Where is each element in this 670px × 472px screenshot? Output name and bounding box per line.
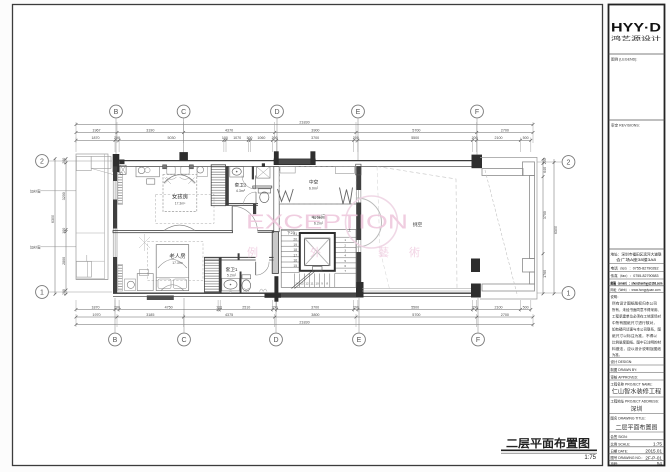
svg-text:17.3m²: 17.3m² (172, 261, 183, 265)
svg-text:16: 16 (293, 259, 297, 263)
svg-text:6: 6 (344, 264, 346, 268)
svg-text:1870: 1870 (92, 136, 100, 140)
svg-text:3700: 3700 (311, 306, 319, 310)
svg-text:审核 APPROVED:: 审核 APPROVED: (611, 375, 639, 380)
svg-text:图号 DRAWING NO.:: 图号 DRAWING NO.: (611, 455, 643, 460)
svg-text:1: 1 (344, 238, 346, 242)
svg-text:15: 15 (293, 264, 297, 268)
svg-text:1: 1 (40, 290, 44, 297)
svg-text:2510: 2510 (242, 306, 250, 310)
svg-text:日期 DATE:: 日期 DATE: (611, 448, 629, 453)
svg-text:2: 2 (40, 159, 44, 166)
svg-text:5700: 5700 (412, 128, 420, 132)
svg-text:4750: 4750 (165, 306, 173, 310)
svg-text:500: 500 (523, 306, 529, 310)
svg-text:外: 外 (310, 246, 321, 259)
svg-text:图例 (LEGEND):: 图例 (LEGEND): (611, 57, 637, 62)
svg-text:5: 5 (344, 259, 346, 263)
svg-text:F: F (475, 109, 479, 116)
svg-text:12: 12 (305, 282, 309, 286)
svg-text:1060: 1060 (257, 136, 265, 140)
svg-text:4370: 4370 (225, 128, 233, 132)
svg-text:21830: 21830 (299, 120, 309, 124)
svg-text:54: 54 (657, 461, 663, 466)
svg-text:4: 4 (344, 254, 346, 258)
svg-text:2015.01: 2015.01 (645, 449, 662, 454)
svg-text:工程承建单位必须在工地现场对: 工程承建单位必须在工地现场对 (612, 314, 662, 319)
svg-text:17.3m²: 17.3m² (175, 201, 186, 205)
svg-text:6.0m²: 6.0m² (309, 186, 319, 190)
svg-text:F: F (476, 337, 480, 344)
svg-text:1760: 1760 (543, 270, 547, 278)
svg-text:如有疑问请速与本公司联系，图: 如有疑问请速与本公司联系，图 (612, 327, 662, 332)
svg-text:100: 100 (222, 136, 228, 140)
svg-text:3800: 3800 (311, 313, 319, 317)
svg-text:E: E (357, 337, 362, 344)
svg-text:D: D (274, 109, 279, 116)
svg-text:3200: 3200 (62, 192, 66, 200)
svg-text:纸尺寸以标注为准，不得以: 纸尺寸以标注为准，不得以 (612, 333, 658, 338)
svg-text:B: B (114, 109, 119, 116)
svg-text:挑空: 挑空 (413, 221, 423, 228)
svg-text:加纱窗: 加纱窗 (30, 189, 41, 194)
svg-text:1: 1 (567, 291, 571, 298)
svg-text:合广场A座38楼3A8: 合广场A座38楼3A8 (616, 257, 656, 262)
svg-text:为准。: 为准。 (612, 352, 622, 357)
svg-text:5.2m²: 5.2m² (227, 273, 237, 277)
svg-text:料做法，应以设计说明及图纸: 料做法，应以设计说明及图纸 (612, 346, 662, 351)
svg-text:3: 3 (344, 249, 346, 253)
svg-text:200: 200 (62, 158, 66, 164)
svg-text:3185: 3185 (146, 313, 154, 317)
svg-text:2: 2 (567, 160, 571, 167)
svg-text:3700: 3700 (311, 136, 319, 140)
svg-text:B: B (113, 337, 118, 344)
svg-text:3900: 3900 (311, 128, 319, 132)
svg-text:18: 18 (293, 248, 297, 252)
svg-text:5030: 5030 (168, 136, 176, 140)
svg-text:电话（tel）：0755-82790282: 电话（tel）：0755-82790282 (611, 266, 659, 271)
svg-text:1970: 1970 (92, 313, 100, 317)
svg-text:C: C (181, 337, 186, 344)
svg-text:二层平面布置图: 二层平面布置图 (506, 436, 590, 450)
svg-text:20: 20 (293, 238, 297, 242)
svg-text:11: 11 (310, 282, 313, 286)
svg-text:鸿艺源设计: 鸿艺源设计 (611, 35, 662, 43)
svg-text:1:75: 1:75 (584, 455, 596, 461)
svg-text:网址（Web）：www.hongyiyuan.com: 网址（Web）：www.hongyiyuan.com (611, 287, 661, 292)
svg-text:邮箱（email）：shenzhenhyy@163.com: 邮箱（email）：shenzhenhyy@163.com (611, 280, 663, 285)
svg-text:200: 200 (62, 289, 66, 295)
svg-text:HYY·D: HYY·D (611, 23, 661, 35)
svg-text:10: 10 (315, 282, 319, 286)
svg-text:仁山智水装修工程: 仁山智水装修工程 (612, 388, 662, 396)
svg-text:说明：: 说明： (611, 294, 621, 299)
svg-text:所有，未经书面同意不得采用、: 所有，未经书面同意不得采用、 (612, 307, 661, 312)
svg-text:设计 DESIGN:: 设计 DESIGN: (611, 359, 633, 364)
svg-text:套卫2: 套卫2 (235, 182, 247, 189)
svg-text:2700: 2700 (501, 128, 509, 132)
svg-text:工程地址 PROJECT ADDRESS:: 工程地址 PROJECT ADDRESS: (611, 399, 659, 404)
svg-text:审定 REVISIONS:: 审定 REVISIONS: (611, 123, 640, 128)
svg-text:1:75: 1:75 (653, 442, 662, 447)
svg-text:4.3m²: 4.3m² (236, 189, 246, 193)
svg-text:加纱窗: 加纱窗 (30, 245, 41, 250)
svg-text:200: 200 (543, 158, 547, 164)
svg-text:1870: 1870 (92, 306, 100, 310)
svg-text:比例量度图纸。图中已注明的材: 比例量度图纸。图中已注明的材 (612, 340, 662, 345)
svg-text:500: 500 (523, 136, 529, 140)
svg-text:100: 100 (216, 306, 222, 310)
svg-text:比例 SCALE:: 比例 SCALE: (611, 441, 631, 446)
svg-text:2F-P-01: 2F-P-01 (645, 455, 662, 460)
svg-text:6300: 6300 (51, 215, 55, 223)
svg-text:17: 17 (293, 253, 297, 257)
svg-text:4375: 4375 (225, 313, 233, 317)
svg-text:7: 7 (344, 269, 346, 273)
svg-text:图名 DRAWING TITLE:: 图名 DRAWING TITLE: (611, 416, 646, 421)
svg-text:100: 100 (246, 136, 252, 140)
svg-text:100: 100 (62, 228, 66, 234)
svg-text:女孩房: 女孩房 (172, 192, 188, 200)
svg-text:術: 術 (409, 246, 420, 259)
svg-text:C: C (181, 109, 186, 116)
svg-text:2800: 2800 (62, 257, 66, 265)
svg-text:藝: 藝 (378, 246, 389, 259)
svg-text:5500: 5500 (411, 306, 419, 310)
svg-text:深圳: 深圳 (630, 405, 642, 413)
svg-text:19: 19 (293, 243, 297, 247)
svg-text:工程名称 PROJECT NAME:: 工程名称 PROJECT NAME: (611, 382, 653, 387)
svg-text:2100: 2100 (495, 136, 503, 140)
svg-text:中空: 中空 (309, 179, 319, 186)
svg-text:3190: 3190 (146, 128, 154, 132)
svg-text:3700: 3700 (543, 211, 547, 219)
svg-text:二层平面布置图: 二层平面布置图 (615, 424, 657, 432)
svg-text:2700: 2700 (501, 313, 509, 317)
svg-text:1070: 1070 (233, 136, 241, 140)
svg-text:2100: 2100 (495, 306, 503, 310)
svg-text:5500: 5500 (411, 136, 419, 140)
svg-text:21830: 21830 (299, 321, 309, 325)
svg-text:640: 640 (543, 167, 547, 173)
svg-text:E: E (356, 109, 361, 116)
svg-text:D: D (273, 337, 278, 344)
svg-text:5700: 5700 (412, 313, 420, 317)
svg-text:地址：深圳市福田区滨河大道联: 地址：深圳市福田区滨河大道联 (611, 252, 663, 257)
svg-text:老人房: 老人房 (169, 252, 185, 260)
svg-text:2: 2 (344, 243, 346, 247)
svg-text:中所有图纸尺寸进行核对，: 中所有图纸尺寸进行核对， (612, 320, 657, 325)
svg-text:所有设计图纸版权归本公司: 所有设计图纸版权归本公司 (612, 301, 657, 306)
svg-text:套卫1: 套卫1 (226, 266, 238, 273)
svg-text:例: 例 (247, 245, 258, 259)
svg-text:6300: 6300 (554, 226, 558, 234)
svg-text:页码:: 页码: (611, 461, 619, 466)
svg-text:EXCEPTION: EXCEPTION (246, 212, 408, 234)
svg-text:制图 DRAWN BY:: 制图 DRAWN BY: (611, 367, 638, 372)
svg-text:1967: 1967 (92, 128, 100, 132)
svg-text:传真（fax）：0755-82790583: 传真（fax）：0755-82790583 (611, 273, 659, 278)
svg-text:会签 SIGN:: 会签 SIGN: (611, 434, 628, 439)
